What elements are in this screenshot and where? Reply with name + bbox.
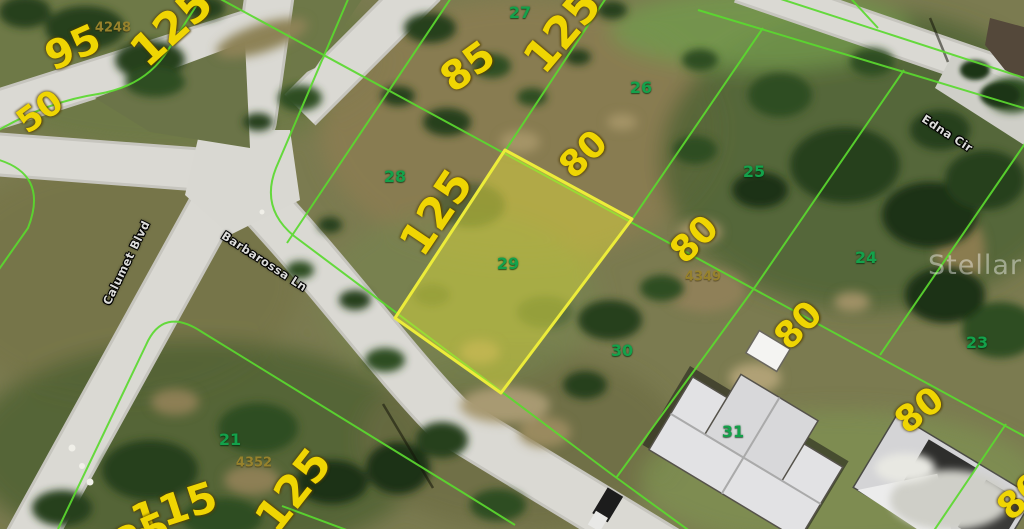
satellite-imagery bbox=[0, 0, 1024, 529]
aerial-parcel-map: 1259550851258012580808080115125125272625… bbox=[0, 0, 1024, 529]
